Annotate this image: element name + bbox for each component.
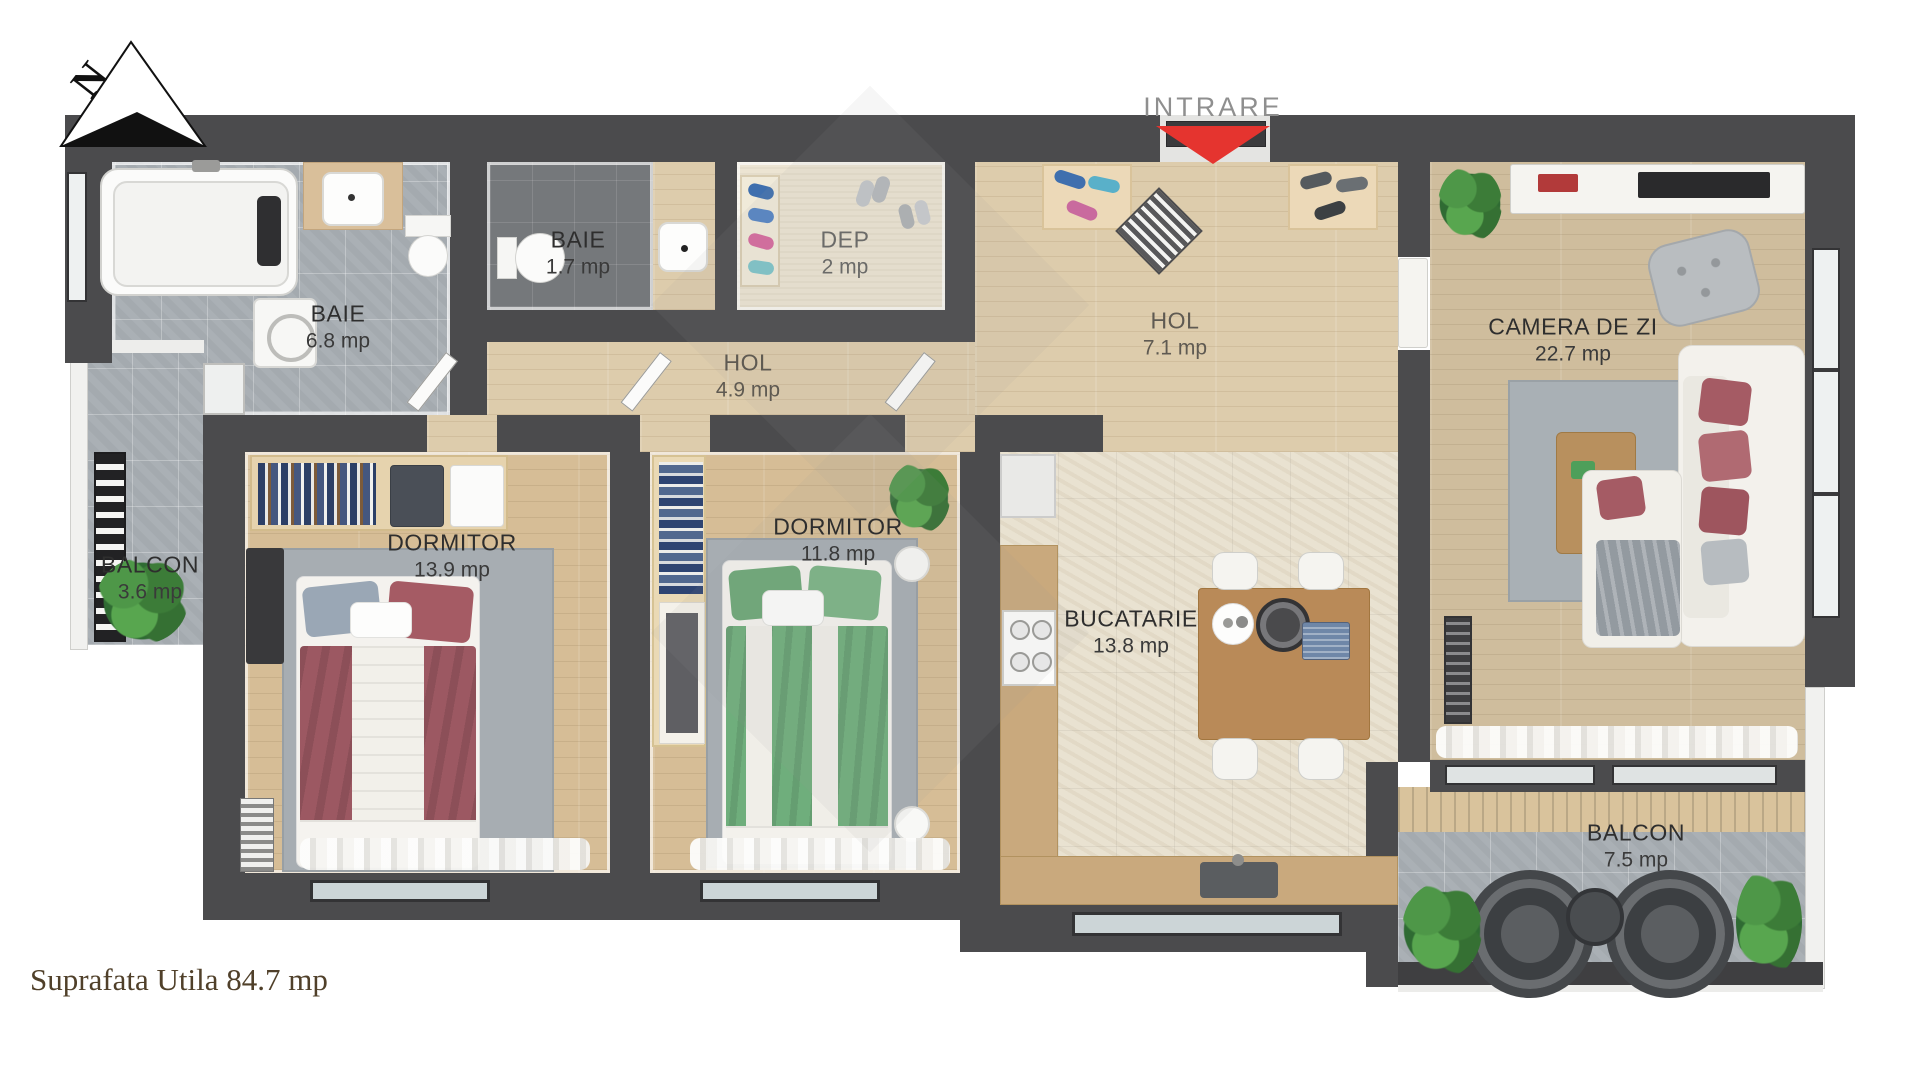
room-name: HOL: [716, 350, 780, 377]
sofa-pillow-red: [1698, 377, 1753, 427]
console-deco: [1538, 174, 1578, 192]
wall-camera-left-top: [1398, 162, 1430, 257]
wall-camera-left: [1398, 350, 1430, 762]
burner: [1032, 652, 1052, 672]
room-name: CAMERA DE ZI: [1488, 314, 1658, 341]
burner: [1010, 652, 1030, 672]
threshold: [427, 415, 497, 452]
room-label-dep: DEP 2 mp: [820, 227, 869, 280]
burner: [1032, 620, 1052, 640]
room-area: 7.5 mp: [1587, 849, 1685, 873]
window-kitchen: [1072, 912, 1342, 936]
slipper: [897, 203, 916, 230]
room-name: DORMITOR: [387, 530, 517, 557]
room-label-baie-mare: BAIE 6.8 mp: [306, 301, 370, 354]
sink-drain: [681, 245, 688, 252]
jeans-shelf: [659, 462, 703, 594]
balcony-table: [1566, 888, 1624, 946]
room-area: 7.1 mp: [1143, 337, 1207, 361]
room-area: 13.8 mp: [1064, 635, 1198, 659]
shoe: [1335, 176, 1368, 193]
room-area: 3.6 mp: [101, 581, 199, 605]
wall-baie-right: [450, 162, 487, 415]
shoe: [1313, 199, 1347, 221]
folded-shirt-dark: [390, 465, 444, 527]
wall-dorm1-left: [203, 415, 245, 875]
shutter-dorm1: [240, 798, 274, 872]
fridge: [1000, 454, 1056, 518]
room-area: 6.8 mp: [306, 330, 370, 354]
north-compass: N: [55, 18, 215, 158]
food: [1236, 616, 1248, 628]
window-camera-bottom-1: [1445, 765, 1595, 785]
room-name: BALCON: [101, 552, 199, 579]
window-dorm1: [310, 880, 490, 902]
chair: [1212, 738, 1258, 780]
rattan-chair: [1606, 870, 1734, 998]
room-area: 2 mp: [820, 256, 869, 280]
kitchen-counter-left: [1000, 545, 1058, 858]
stove: [1002, 610, 1056, 686]
shoe-shelf-left: [1042, 164, 1132, 230]
window-camera-bottom-2: [1612, 765, 1777, 785]
room-label-hol-mare: HOL 7.1 mp: [1143, 308, 1207, 361]
balcon-mare-railing-edge: [1398, 985, 1823, 992]
kitchen-sink: [1200, 862, 1278, 898]
room-label-hol-mic: HOL 4.9 mp: [716, 350, 780, 403]
vanity-baie-mare: [303, 162, 403, 230]
kitchen-faucet: [1232, 854, 1244, 866]
tv-dorm1: [246, 548, 284, 664]
shoe: [1087, 175, 1121, 194]
window-right-wall: [1812, 248, 1840, 618]
curtains-dorm2: [690, 838, 950, 870]
wall-baie2-bottom: [487, 310, 715, 342]
tv: [1638, 172, 1770, 198]
wall-top: [65, 115, 1855, 162]
bathtub: [100, 168, 298, 296]
room-name: BUCATARIE: [1064, 606, 1198, 633]
room-label-balcon-mare: BALCON 7.5 mp: [1587, 820, 1685, 873]
sofa-blanket: [1596, 540, 1680, 636]
wall-dep-right: [945, 162, 975, 342]
chair: [1298, 552, 1344, 590]
total-area-label: Suprafata Utila 84.7 mp: [30, 962, 328, 998]
toilet-tank: [405, 215, 451, 237]
shoe: [747, 182, 775, 201]
closet-inner: [666, 613, 698, 733]
room-label-baie-mica: BAIE 1.7 mp: [546, 227, 610, 280]
shoe-rack-dep: [740, 175, 780, 287]
chair: [1212, 552, 1258, 590]
curtains-dorm1: [300, 838, 590, 870]
window-dorm2: [700, 880, 880, 902]
room-name: HOL: [1143, 308, 1207, 335]
wall-dep-bottom: [715, 310, 945, 342]
wall-hol-bedrooms-c: [710, 415, 905, 452]
shoe: [1299, 170, 1333, 190]
wall-dorm1-dorm2: [610, 452, 650, 873]
shoe-shelf-right: [1288, 164, 1378, 230]
slipper: [870, 174, 892, 204]
chair: [1298, 738, 1344, 780]
room-label-camera-de-zi: CAMERA DE ZI 22.7 mp: [1488, 314, 1658, 367]
plant-camera: [1438, 166, 1502, 242]
entrance-label: INTRARE: [1143, 92, 1283, 123]
sink-baie-mica: [658, 222, 708, 272]
room-name: DORMITOR: [773, 514, 903, 541]
shoe: [747, 207, 775, 224]
shoe: [747, 232, 776, 252]
chaise-pillow-red: [1595, 475, 1646, 521]
nightstand-round: [894, 806, 930, 842]
toilet-tank: [497, 237, 517, 279]
toilet-baie-mare: [405, 215, 449, 277]
closet-dorm2: [652, 455, 706, 747]
floor-plan: INTRARE: [0, 0, 1920, 1080]
window-left-wall: [67, 172, 87, 302]
sofa-pillow-red: [1698, 486, 1750, 536]
room-area: 1.7 mp: [546, 256, 610, 280]
plant-balcon-left: [1402, 882, 1482, 978]
room-name: BAIE: [306, 301, 370, 328]
plate: [1212, 603, 1254, 645]
wall-hol-bedrooms-d: [975, 415, 1103, 452]
laptop: [1302, 622, 1350, 660]
radiator-camera: [1444, 616, 1472, 724]
room-name: DEP: [820, 227, 869, 254]
room-area: 11.8 mp: [773, 543, 903, 567]
shoe: [1053, 168, 1087, 190]
bathtub-headrest: [257, 196, 281, 266]
room-name: BAIE: [546, 227, 610, 254]
closet-lower: [659, 602, 705, 744]
plant-balcon-right: [1736, 868, 1802, 976]
entrance-arrow: [1156, 126, 1270, 164]
pillow-white: [762, 590, 824, 626]
hanging-clothes: [258, 463, 376, 525]
wall-dorm2-kitchen: [960, 452, 1000, 905]
console-table: [1398, 258, 1428, 348]
kitchen-counter-bottom: [1000, 856, 1398, 905]
room-label-dormitor-mare: DORMITOR 13.9 mp: [387, 530, 517, 583]
room-area: 13.9 mp: [387, 559, 517, 583]
balcon-mic-rail: [70, 352, 88, 650]
room-area: 4.9 mp: [716, 379, 780, 403]
shoe: [1065, 198, 1100, 222]
shoe: [747, 259, 775, 275]
sofa-pillow-red: [1698, 430, 1753, 483]
sink-drain: [348, 194, 355, 201]
wardrobe-dorm1: [250, 455, 508, 531]
room-label-balcon-mic: BALCON 3.6 mp: [101, 552, 199, 605]
sofa-pillow-gray: [1700, 538, 1750, 586]
threshold: [905, 415, 975, 452]
wall-hol-bedrooms-b: [497, 415, 640, 452]
food: [1223, 618, 1233, 628]
room-label-bucatarie: BUCATARIE 13.8 mp: [1064, 606, 1198, 659]
pillow-white: [350, 602, 412, 638]
room-label-dormitor-mic: DORMITOR 11.8 mp: [773, 514, 903, 567]
room-name: BALCON: [1587, 820, 1685, 847]
burner: [1010, 620, 1030, 640]
curtains-camera: [1436, 726, 1798, 758]
toilet-bowl: [408, 235, 448, 277]
threshold: [640, 415, 710, 452]
balcon-mic-door: [203, 363, 245, 415]
balcon-mare-rail-right: [1805, 687, 1825, 989]
slipper: [913, 199, 932, 226]
folded-shirt-white: [450, 465, 504, 527]
bath-faucet: [192, 160, 220, 172]
room-area: 22.7 mp: [1488, 343, 1658, 367]
